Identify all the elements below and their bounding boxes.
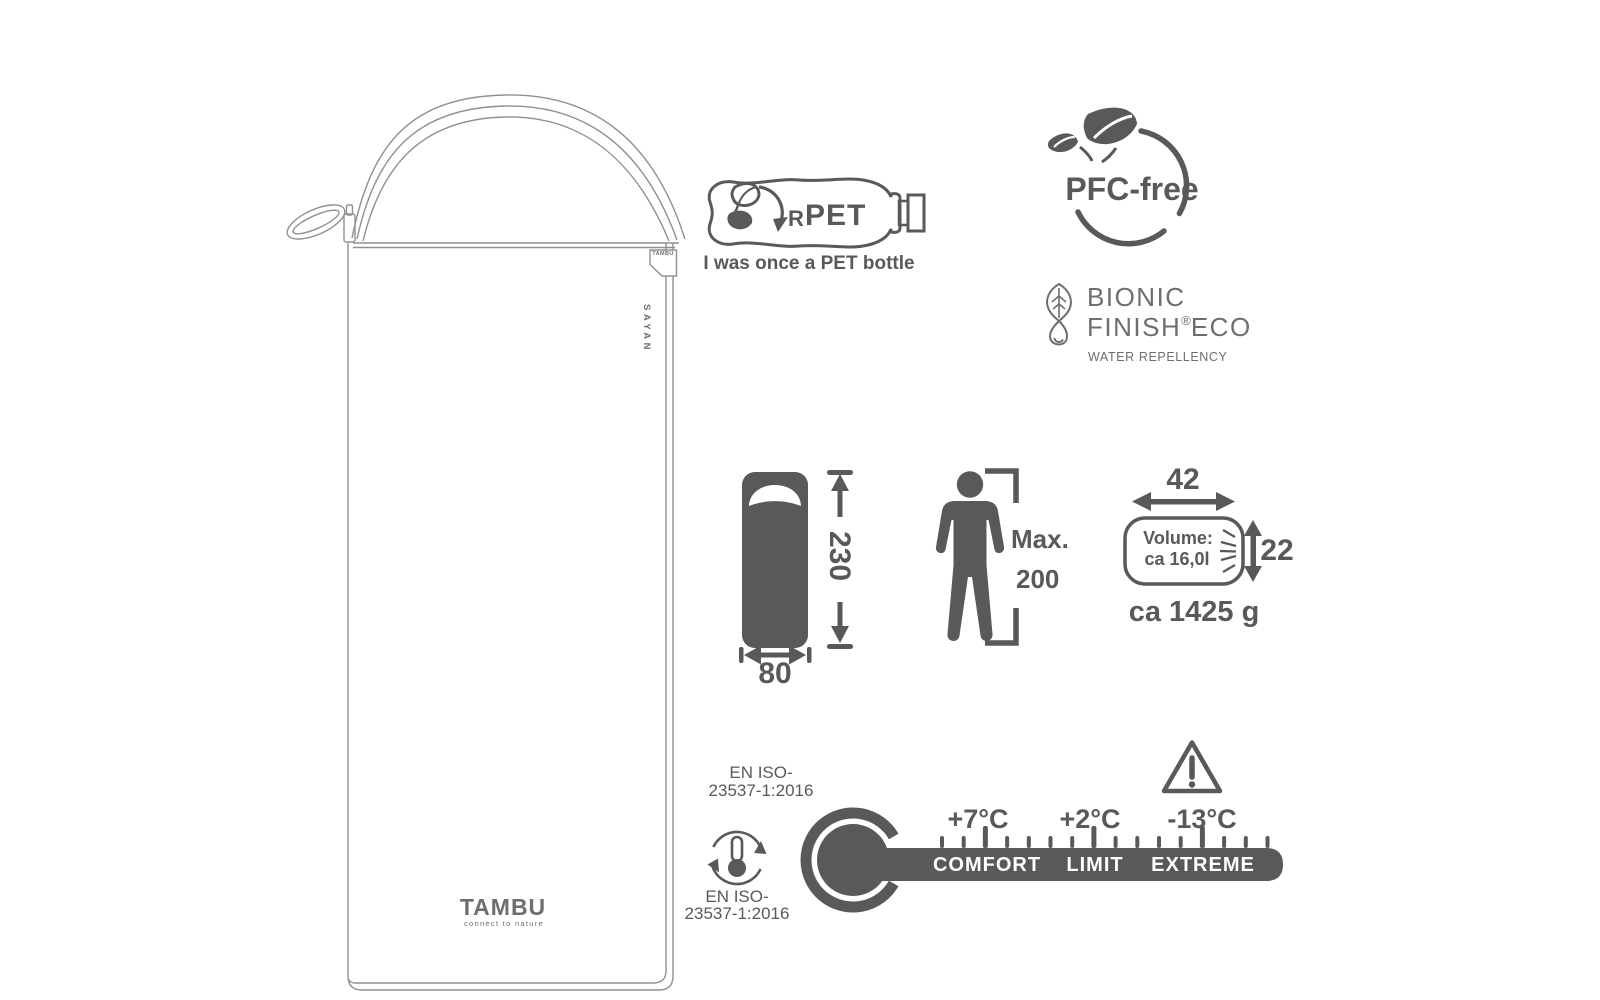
corner-tag-label: TAMBU (652, 252, 673, 258)
standard-top-line1: EN ISO- (729, 764, 792, 781)
pack-height-value: 22 (1260, 536, 1293, 566)
rpet-caption: I was once a PET bottle (693, 254, 925, 273)
weight-value: ca 1425 g (1129, 598, 1260, 627)
pack-size-spec: 42 Volume: ca 16,0l 22 ca 1425 g (1120, 455, 1310, 635)
standard-icon-line1: EN ISO- (705, 888, 768, 905)
pfc-free-badge: PFC-free (1030, 100, 1220, 250)
product-infographic: TAMBU SAYAN TAMBU connect to nature R PE… (0, 0, 1600, 1000)
limit-label: LIMIT (1066, 855, 1123, 875)
finish-eco-line: FINISH®ECO (1087, 312, 1252, 343)
bracket-top-icon (985, 471, 1016, 503)
pack-width-value: 42 (1166, 465, 1199, 495)
standard-top-line2: 23537-1:2016 (709, 782, 814, 799)
water-repellency-caption: WATER REPELLENCY (1088, 351, 1228, 364)
eco-word: ECO (1191, 312, 1252, 343)
rpet-label-r: R (788, 208, 804, 230)
sack-pucker-icon (1220, 530, 1236, 572)
standard-icon-line2: 23537-1:2016 (685, 905, 790, 922)
registered-mark: ® (1181, 313, 1191, 328)
volume-label: Volume: (1143, 529, 1213, 547)
comfort-label: COMFORT (933, 855, 1041, 875)
rpet-badge: R PET I was once a PET bottle (693, 168, 943, 283)
rpet-label-pet: PET (805, 201, 866, 231)
finish-word: FINISH (1087, 312, 1181, 343)
thermometer-cycle-icon (706, 827, 768, 891)
sleeping-bag-drawing: TAMBU SAYAN TAMBU connect to nature (270, 80, 700, 1000)
warning-icon (1159, 736, 1225, 800)
bionic-word: BIONIC (1087, 284, 1186, 310)
pack-height-arrow-icon (1244, 520, 1262, 582)
bionic-leaf-drop-icon (1040, 281, 1085, 356)
length-value: 230 (824, 531, 854, 581)
person-icon (905, 455, 1025, 650)
comfort-temp: +7°C (947, 806, 1008, 833)
brand-tagline: connect to nature (464, 920, 544, 928)
limit-temp: +2°C (1059, 806, 1120, 833)
person-height-spec: Max. 200 (905, 455, 1080, 650)
bionic-finish-badge: BIONIC FINISH®ECO WATER REPELLENCY (1040, 281, 1275, 376)
extreme-temp: -13°C (1167, 806, 1236, 833)
recycling-leaf-icon (727, 184, 788, 232)
sleeping-bag-outline-icon (270, 80, 700, 1000)
extreme-label: EXTREME (1151, 855, 1255, 875)
width-value: 80 (758, 659, 791, 689)
zipper-slider-icon (344, 214, 355, 242)
zipper-pull-loop-icon (283, 198, 350, 246)
brand-logo: TAMBU (460, 896, 546, 919)
product-name-vertical: SAYAN (642, 304, 652, 353)
pfc-free-label: PFC-free (1065, 173, 1198, 205)
bottle-cap-icon (908, 195, 924, 231)
temperature-rating: EN ISO- 23537-1:2016 EN ISO- 23537-1:201… (670, 735, 1305, 935)
person-max-value: 200 (1016, 566, 1059, 592)
dimensions-spec: 230 80 (705, 455, 880, 695)
person-max-label: Max. (1011, 526, 1069, 552)
volume-value: ca 16,0l (1144, 550, 1209, 568)
